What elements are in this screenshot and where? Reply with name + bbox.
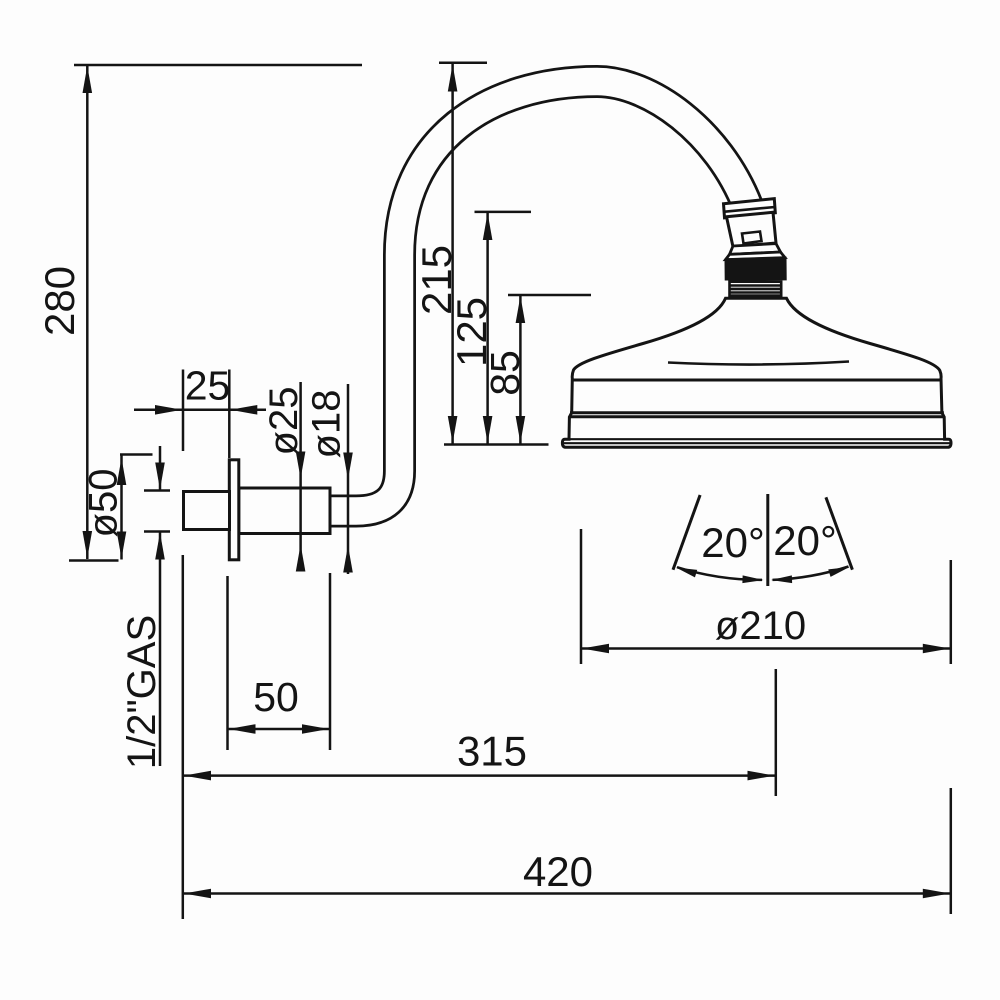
svg-text:85: 85 <box>482 350 528 396</box>
svg-text:20°: 20° <box>701 519 765 566</box>
svg-text:ø210: ø210 <box>715 604 806 648</box>
svg-text:315: 315 <box>457 728 527 775</box>
svg-text:ø18: ø18 <box>305 390 349 459</box>
svg-text:1/2"GAS: 1/2"GAS <box>120 615 164 769</box>
svg-text:ø25: ø25 <box>262 387 306 456</box>
svg-text:20°: 20° <box>773 517 837 564</box>
svg-text:25: 25 <box>185 363 231 409</box>
svg-text:50: 50 <box>253 674 299 720</box>
svg-text:420: 420 <box>523 848 593 895</box>
svg-text:280: 280 <box>36 266 83 336</box>
svg-text:ø50: ø50 <box>82 469 126 538</box>
